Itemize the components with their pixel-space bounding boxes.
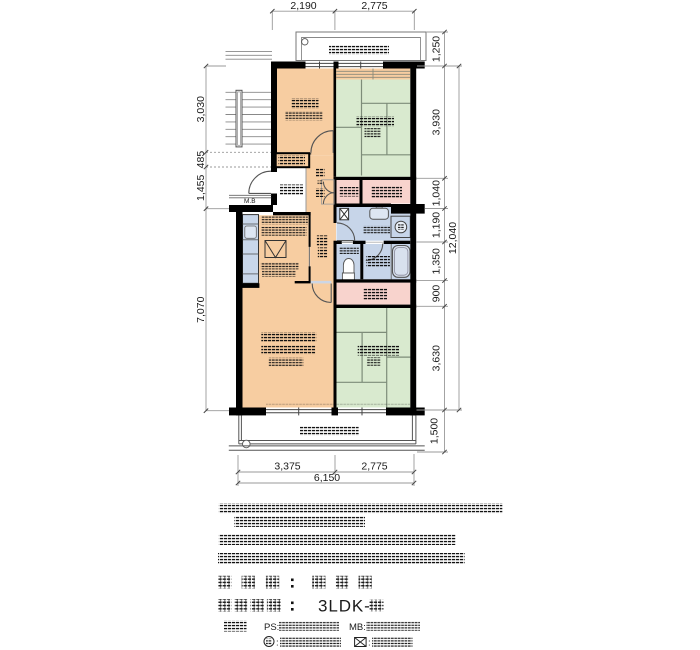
svg-text::: : [276,638,279,649]
svg-text:1,250: 1,250 [431,36,443,62]
svg-text:1,040: 1,040 [431,180,443,206]
svg-text:2,190: 2,190 [290,0,316,12]
svg-text:MB:: MB: [349,622,366,633]
svg-text:3,375: 3,375 [274,461,300,473]
svg-text:6,150: 6,150 [314,472,340,484]
svg-text:3,630: 3,630 [431,345,443,371]
svg-text:12,040: 12,040 [447,222,459,254]
svg-text:PS:: PS: [264,622,279,633]
svg-text::: : [368,638,371,649]
svg-text:2,775: 2,775 [361,0,387,12]
svg-text:1,350: 1,350 [431,248,443,274]
svg-text:485: 485 [195,151,207,169]
svg-text:2,775: 2,775 [361,461,387,473]
svg-text:3LDK-: 3LDK- [318,597,371,616]
svg-text:7,070: 7,070 [195,296,207,322]
svg-text:3,030: 3,030 [195,96,207,122]
svg-text:1,190: 1,190 [431,212,443,238]
svg-text:1,500: 1,500 [429,418,441,444]
svg-text:3,930: 3,930 [431,109,443,135]
svg-text:1,455: 1,455 [195,175,207,201]
svg-text:900: 900 [431,285,443,303]
